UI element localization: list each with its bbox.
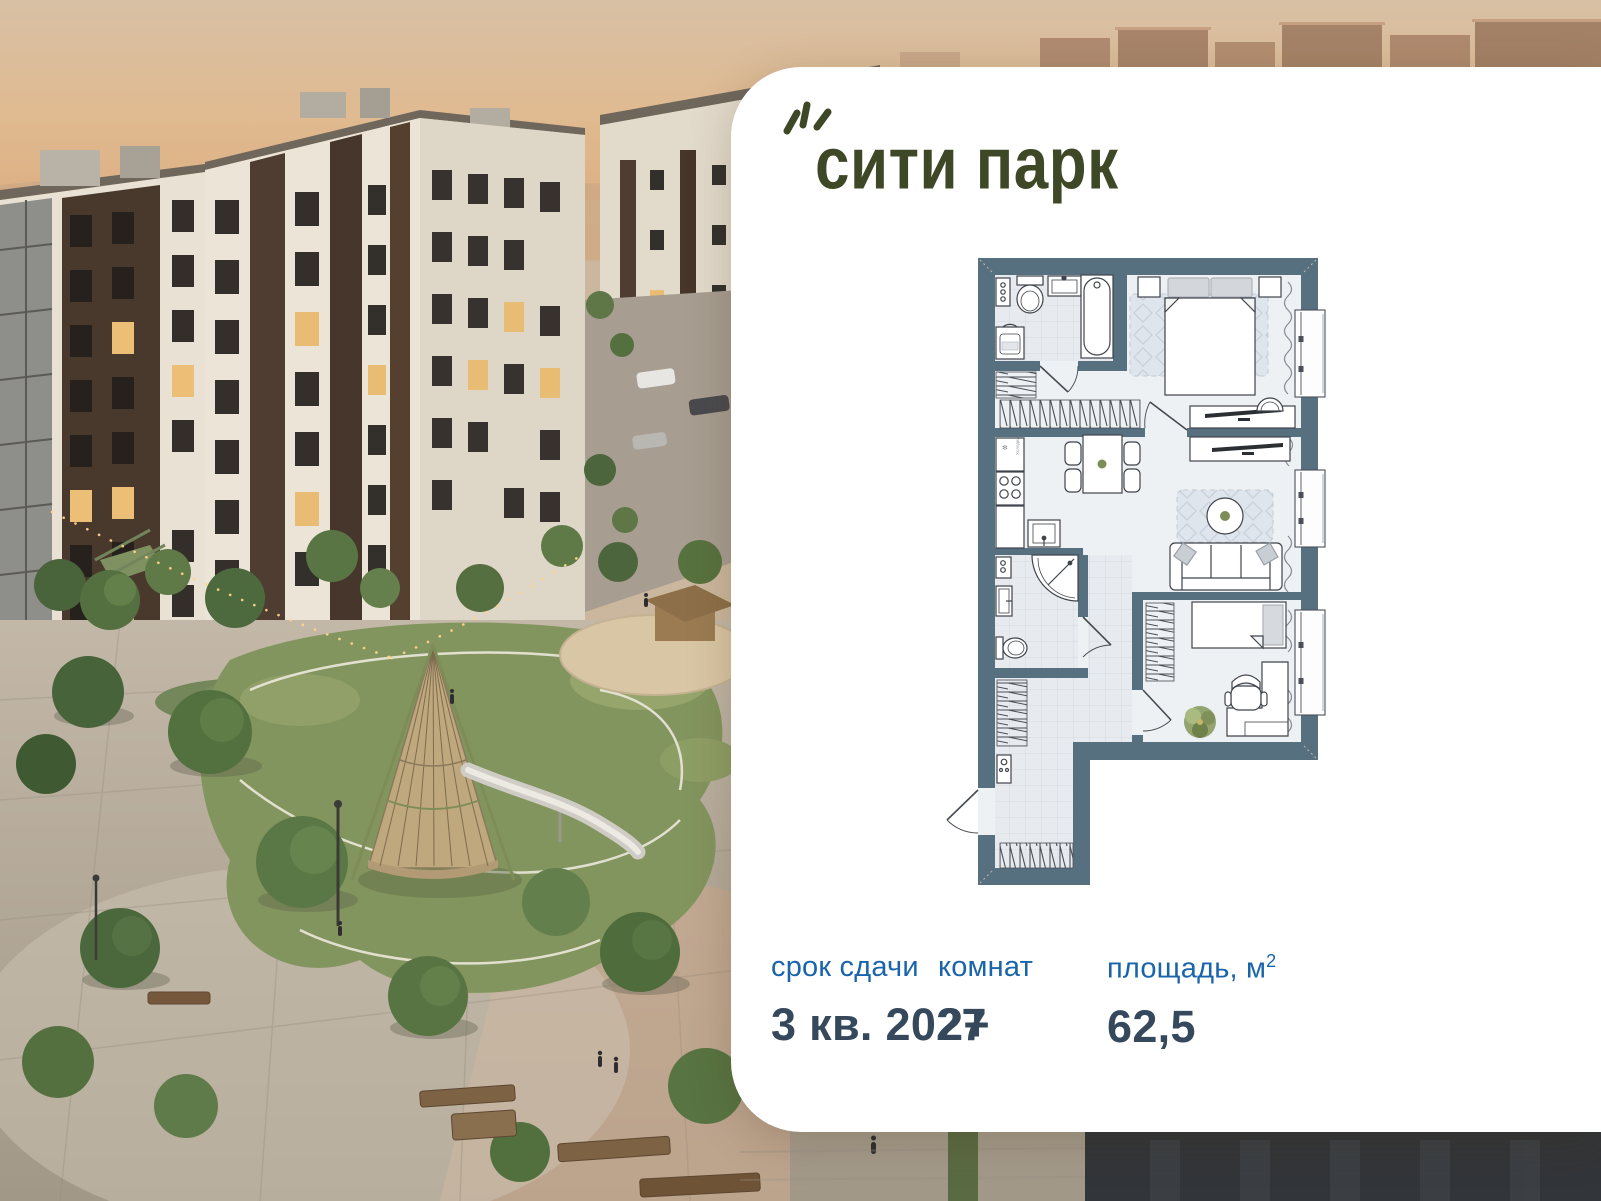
dining-table <box>1065 435 1140 493</box>
plant <box>1184 706 1216 738</box>
brand-logo-text: сити парк <box>815 125 1119 205</box>
sofa <box>1170 543 1282 590</box>
washing-machine <box>996 324 1024 359</box>
windows <box>1295 310 1325 715</box>
stat-rooms-value: 2+ <box>938 999 1033 1051</box>
stat-area: площадь, м2 62,5 <box>1107 951 1276 1053</box>
fridge-label: Холодил. <box>1015 436 1020 455</box>
meter-box <box>997 755 1011 783</box>
tv-stand <box>1190 437 1290 461</box>
kitchen-sink <box>1028 520 1060 547</box>
stat-rooms-label: комнат <box>938 951 1033 984</box>
single-bed <box>1192 602 1286 648</box>
listing-card[interactable]: сити парк <box>731 67 1601 1132</box>
utility-box <box>996 557 1011 578</box>
bathroom-sink <box>1048 276 1081 296</box>
kitchen-counter <box>996 506 1024 548</box>
stat-area-value: 62,5 <box>1107 1001 1276 1053</box>
svg-text:✻: ✻ <box>1002 444 1008 452</box>
shower-sink <box>996 586 1012 616</box>
coffee-table <box>1207 498 1243 534</box>
nightstand <box>1259 277 1281 297</box>
stat-area-label: площадь, м2 <box>1107 951 1276 986</box>
toilet <box>1017 276 1043 313</box>
utility-box <box>996 278 1010 306</box>
nightstand <box>1138 277 1160 297</box>
stove <box>996 472 1024 505</box>
floor-plan: ✻ <box>933 253 1328 893</box>
bathtub <box>1081 275 1113 358</box>
floor-plan-container: ✻ <box>933 253 1328 893</box>
brand-logo: сити парк <box>815 125 1119 215</box>
stat-rooms: комнат 2+ <box>938 951 1033 1051</box>
toilet <box>996 637 1027 659</box>
